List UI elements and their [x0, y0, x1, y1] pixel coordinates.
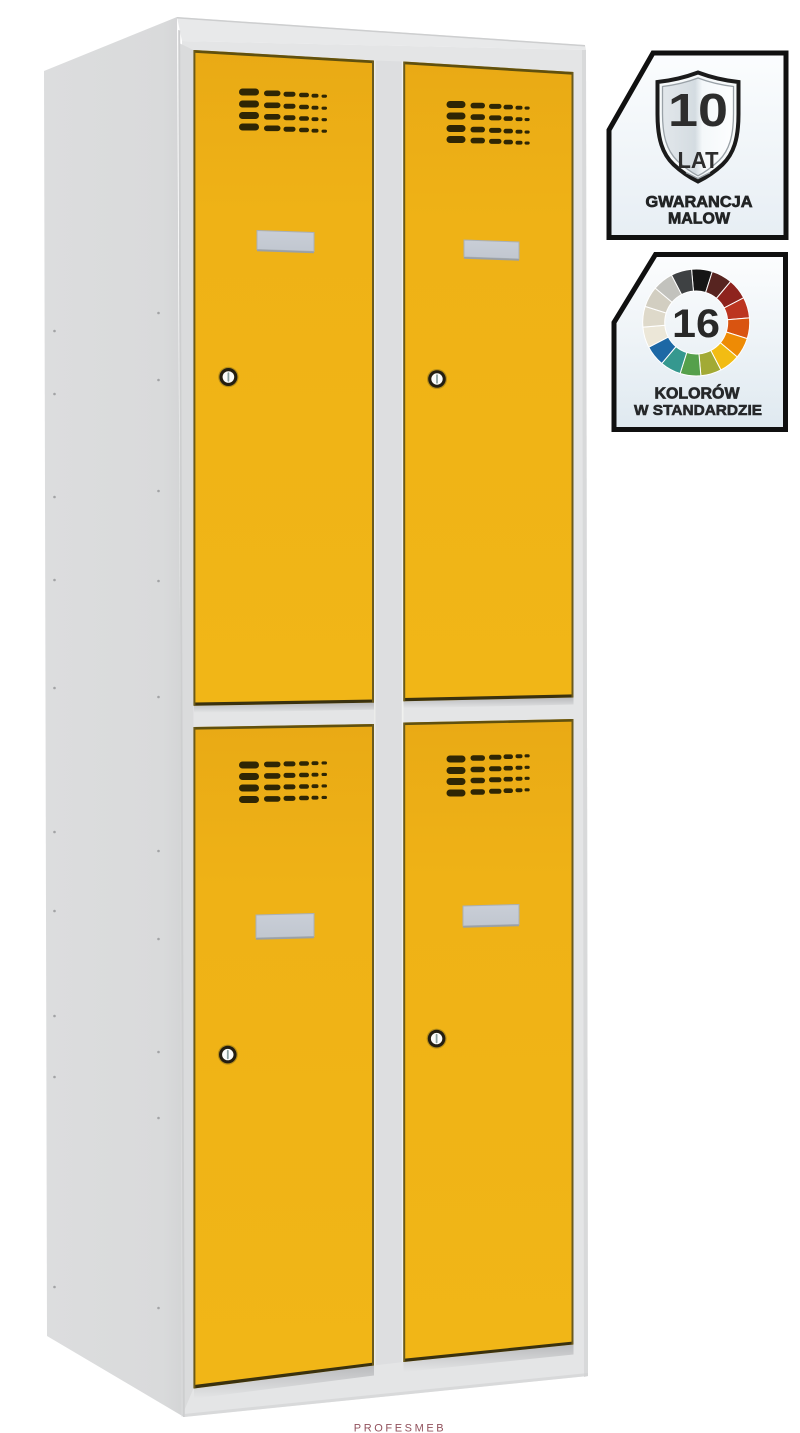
svg-text:10: 10: [668, 84, 728, 136]
svg-text:MALOW: MALOW: [668, 211, 731, 228]
svg-text:W STANDARDZIE: W STANDARDZIE: [634, 402, 762, 419]
svg-text:GWARANCJA: GWARANCJA: [646, 194, 753, 211]
svg-text:LAT: LAT: [678, 147, 719, 173]
svg-text:16: 16: [672, 302, 720, 346]
svg-text:PROFESMEB: PROFESMEB: [354, 1423, 446, 1433]
svg-text:KOLORÓW: KOLORÓW: [655, 384, 741, 403]
